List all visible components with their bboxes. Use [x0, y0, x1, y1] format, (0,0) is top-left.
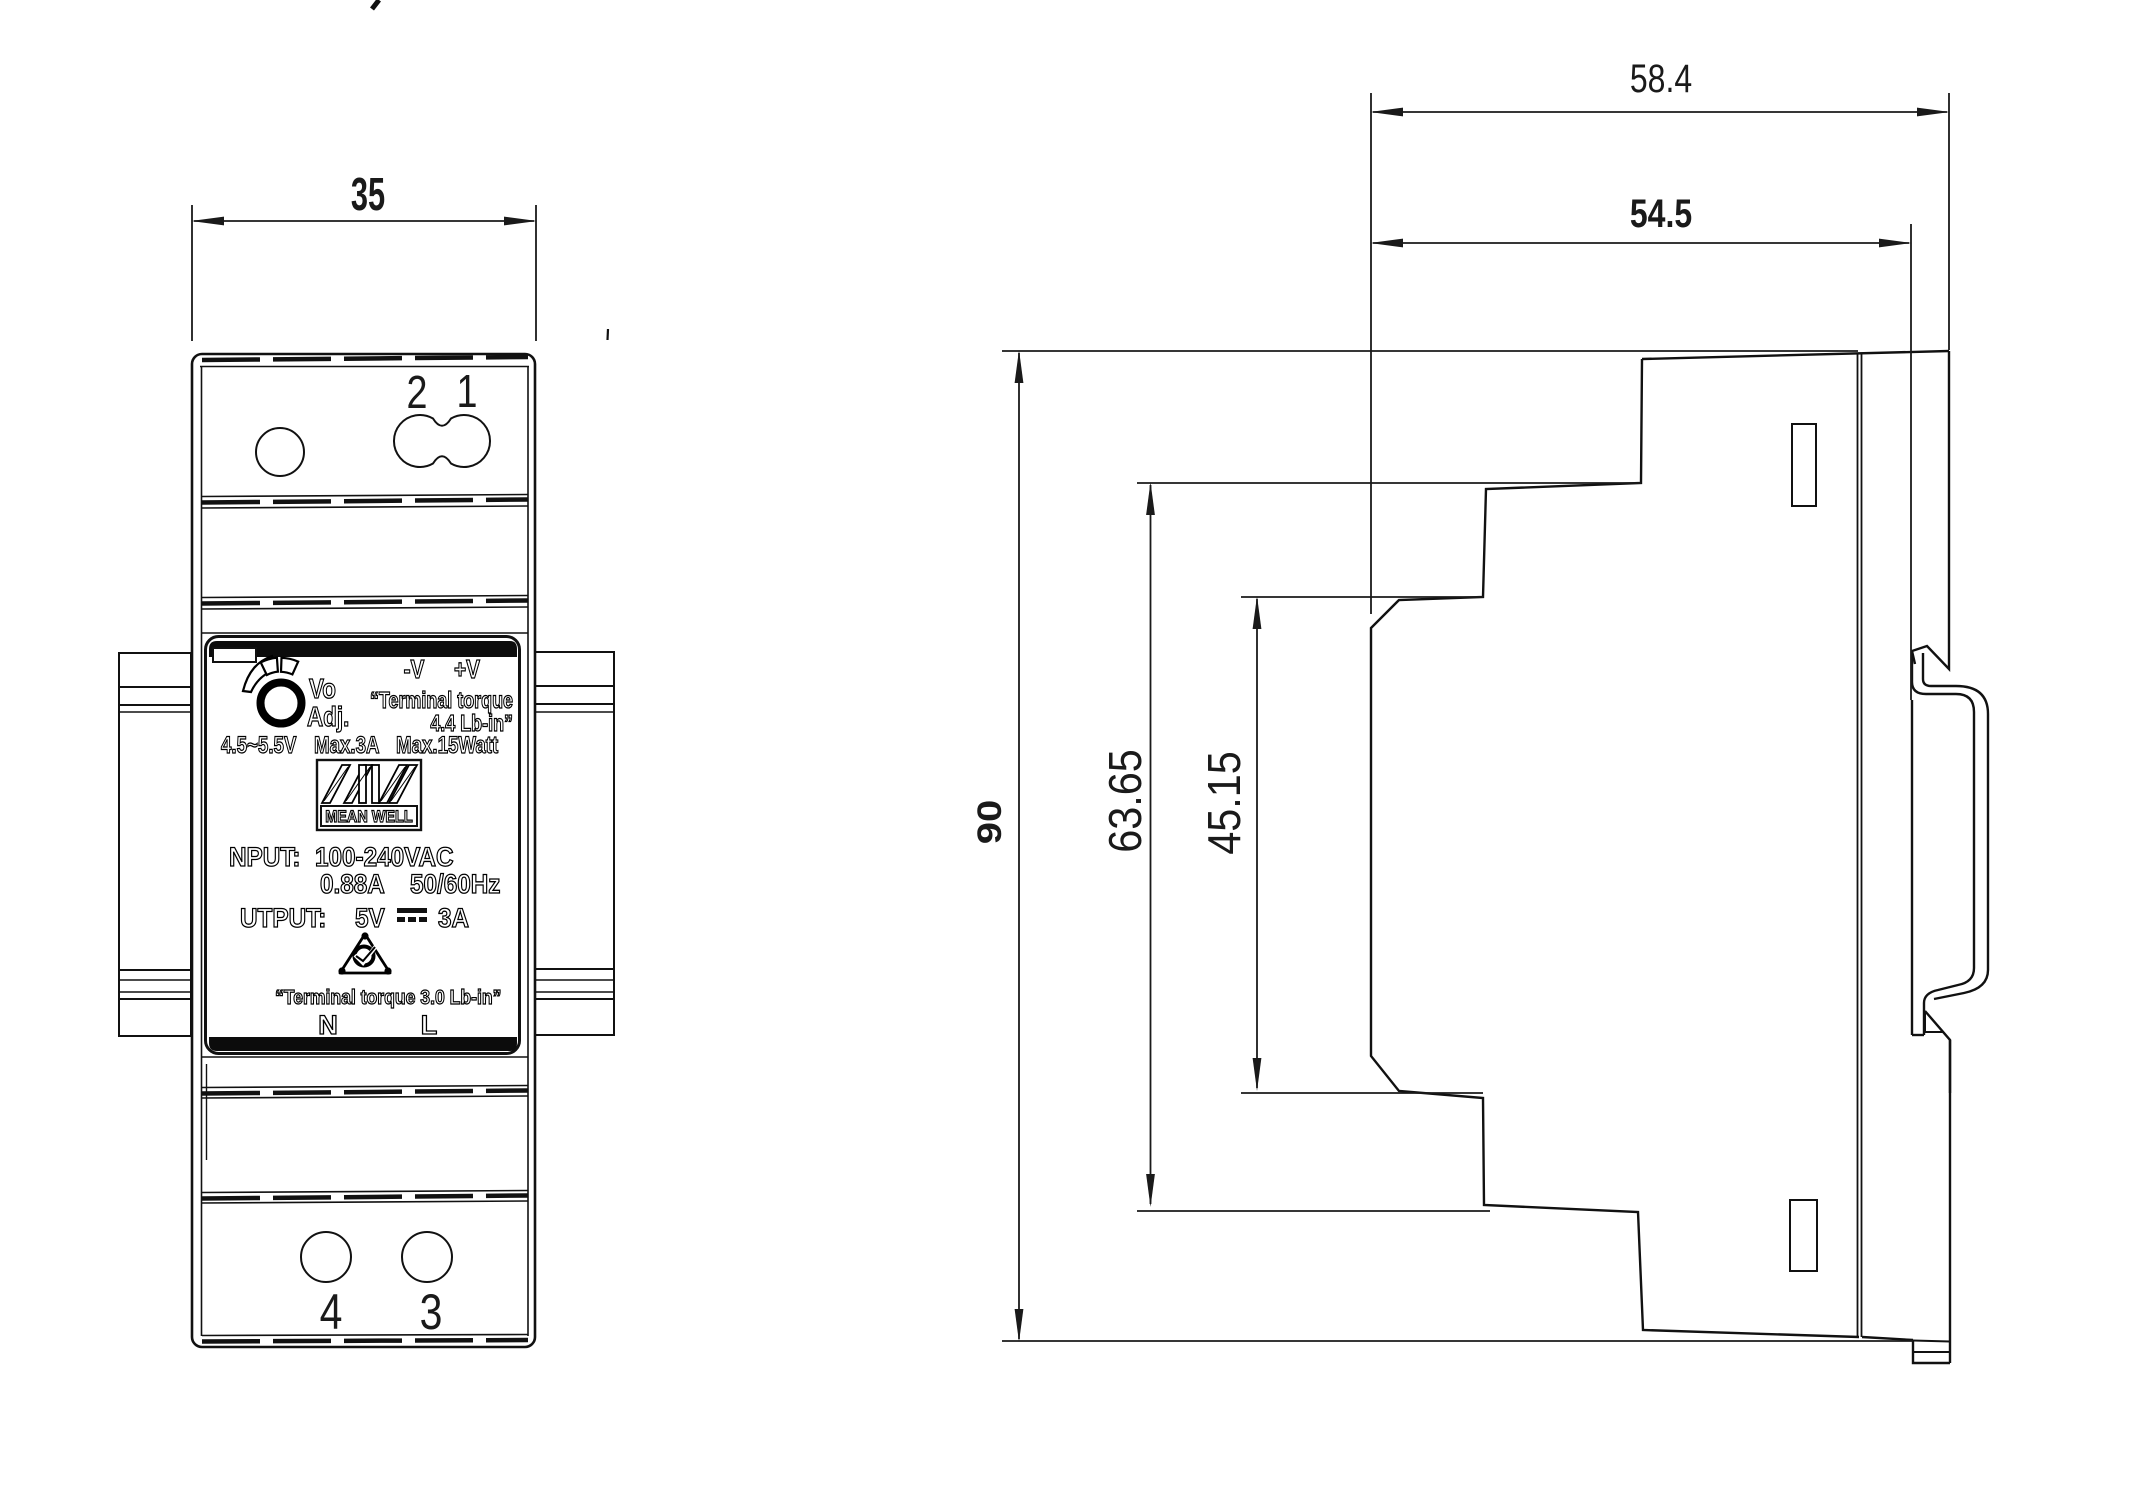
svg-text:Max.3A: Max.3A: [314, 732, 380, 759]
svg-text:63.65: 63.65: [1100, 749, 1152, 853]
svg-text:100-240VAC: 100-240VAC: [315, 843, 454, 872]
svg-text:MEAN WELL: MEAN WELL: [325, 808, 413, 826]
svg-text:3A: 3A: [438, 904, 469, 933]
svg-text:UTPUT:: UTPUT:: [240, 904, 326, 933]
svg-text:N: N: [318, 1010, 338, 1040]
svg-text:3: 3: [420, 1284, 443, 1340]
svg-text:1: 1: [457, 365, 478, 416]
svg-text:35: 35: [351, 170, 385, 221]
svg-text:“Terminal torque: “Terminal torque: [370, 688, 513, 714]
svg-text:NPUT:: NPUT:: [229, 843, 301, 872]
svg-text:Vo: Vo: [309, 674, 336, 705]
svg-text:45.15: 45.15: [1199, 751, 1251, 855]
svg-text:58.4: 58.4: [1630, 56, 1692, 101]
svg-text:5V: 5V: [355, 904, 385, 933]
svg-text:50/60Hz: 50/60Hz: [410, 870, 500, 899]
svg-text:2: 2: [407, 366, 428, 417]
svg-text:0.88A: 0.88A: [320, 870, 385, 899]
svg-text:90: 90: [970, 800, 1008, 844]
svg-text:4: 4: [320, 1284, 343, 1340]
svg-text:4.5~5.5V: 4.5~5.5V: [221, 732, 297, 759]
svg-text:+V: +V: [454, 655, 480, 684]
svg-text:“Terminal torque 3.0 Lb-in”: “Terminal torque 3.0 Lb-in”: [275, 986, 501, 1008]
svg-text:Adj.: Adj.: [307, 702, 349, 733]
svg-text:Max.15Watt: Max.15Watt: [396, 732, 498, 759]
svg-text:L: L: [421, 1010, 438, 1040]
svg-text:54.5: 54.5: [1630, 191, 1692, 236]
svg-text:-V: -V: [404, 655, 425, 684]
